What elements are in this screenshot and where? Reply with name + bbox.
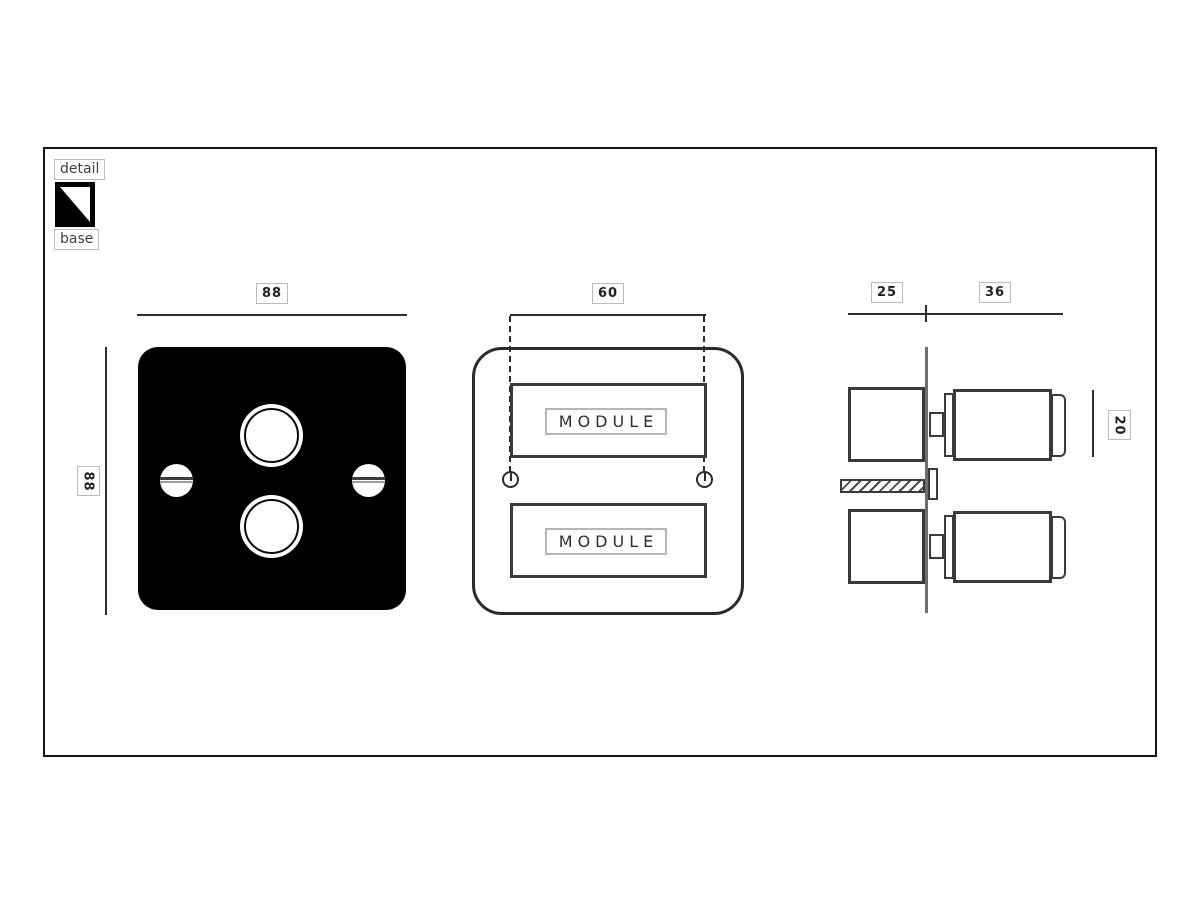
front-depth-dim-label: 36 [979,282,1011,303]
front-width-dim-label: 88 [256,283,288,304]
front-height-dim-line [105,347,107,615]
knob-cap-top [1051,394,1066,457]
back-box-bottom [848,509,925,584]
screw-hole-left [502,471,519,488]
dimmer-knob-bottom-ring [244,499,299,554]
mounting-screw-head [928,468,938,500]
knob-stem-top [929,412,944,437]
mounting-screw-thread [840,479,925,493]
back-box-top [848,387,925,462]
module-slot-top-label: MODULE [545,408,667,435]
screw-hole-right [696,471,713,488]
module-slot-bottom-label: MODULE [545,528,667,555]
front-width-dim-line [137,314,407,316]
front-height-dim-label: 88 [77,466,100,496]
knob-body-bottom [953,511,1052,583]
knob-height-dim-label: 20 [1108,410,1131,440]
detail-base-finish-swatch-icon [55,182,95,227]
side-depth-dim-line [848,313,1063,315]
dimmer-knob-top [240,404,303,467]
faceplate-screw-right [352,464,385,497]
knob-body-top [953,389,1052,461]
knob-stem-bottom [929,534,944,559]
legend-base-label: base [54,229,99,250]
drawing-canvas: detail base 88 88 60 M [0,0,1200,900]
faceplate-screw-left [160,464,193,497]
module-width-dim-label: 60 [592,283,624,304]
legend-detail-label: detail [54,159,105,180]
knob-height-dim-line [1092,390,1094,457]
dimmer-knob-top-ring [244,408,299,463]
module-width-dim-line [510,314,706,316]
dimmer-knob-bottom [240,495,303,558]
back-depth-dim-label: 25 [871,282,903,303]
knob-cap-bottom [1051,516,1066,579]
side-depth-dim-tick [925,305,927,322]
